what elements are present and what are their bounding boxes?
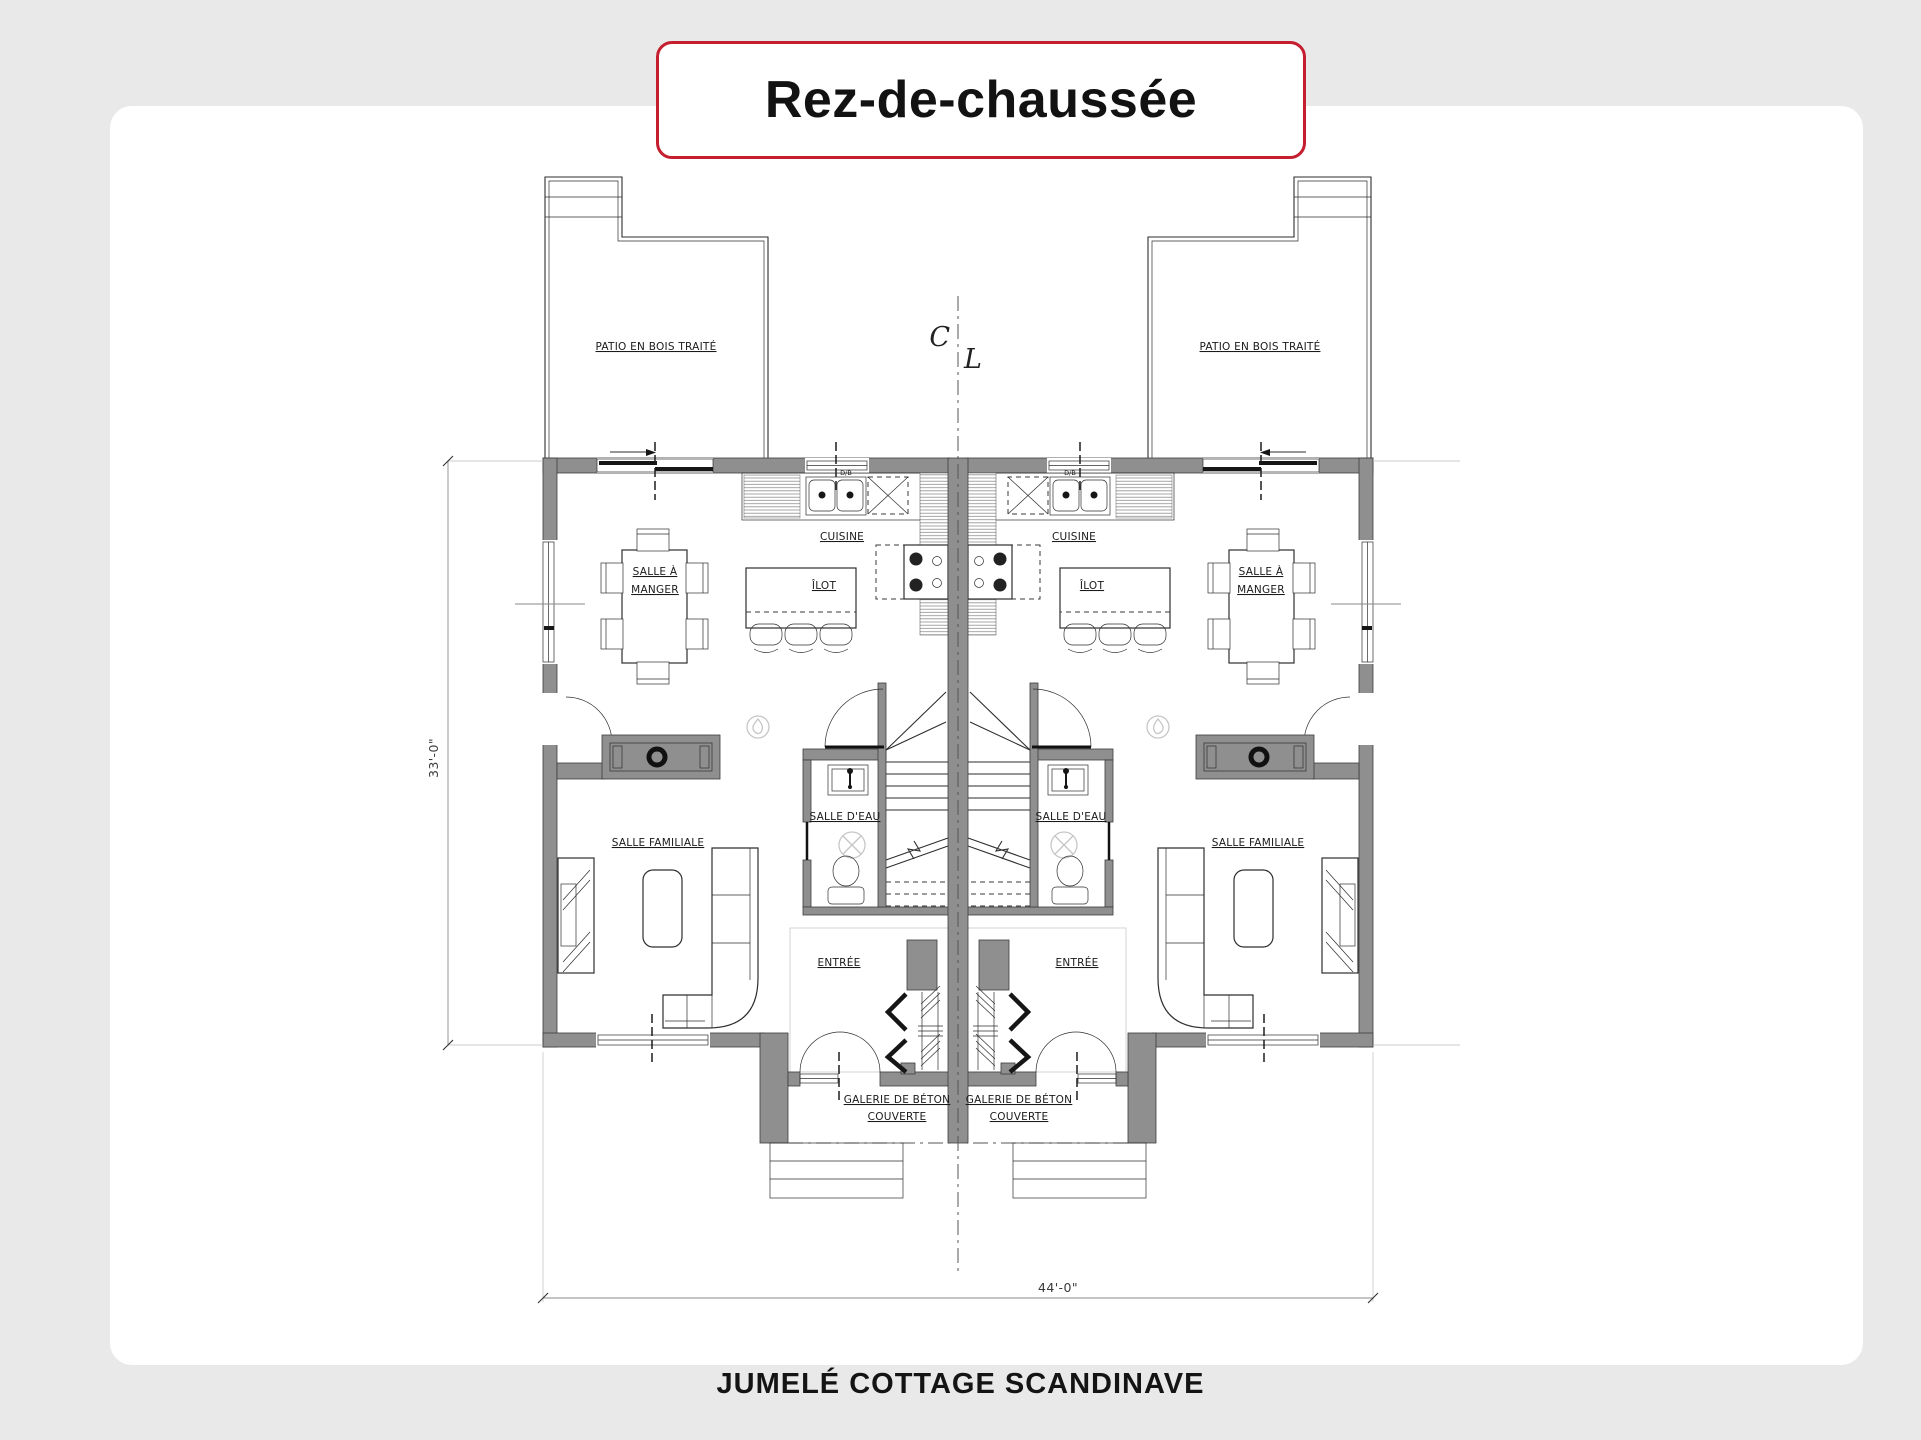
label-cuisine: CUISINE [820,531,864,543]
svg-text:33'-0": 33'-0" [426,738,441,778]
floor-plan-svg: C L 44'-0" 33'-0" PATIO EN BOIS TRAITÉ C… [400,160,1460,1330]
label-galerie: GALERIE DE BÉTON [966,1093,1073,1106]
centerline-c: C [929,322,950,353]
label-galerie: GALERIE DE BÉTON [844,1093,951,1106]
floor-plan: C L 44'-0" 33'-0" PATIO EN BOIS TRAITÉ C… [400,160,1460,1330]
label-salle-a-manger: SALLE À [1239,565,1284,578]
label-entree: ENTRÉE [1056,956,1099,969]
label-salle-a-manger: MANGER [1237,584,1285,596]
label-salle-familiale: SALLE FAMILIALE [1212,837,1305,849]
centerline-l: L [963,344,982,375]
title-box: Rez-de-chaussée [656,41,1306,159]
label-salle-deau: SALLE D'EAU [810,811,881,823]
label-ilot: ÎLOT [1079,579,1105,592]
svg-text:44'-0": 44'-0" [1038,1280,1078,1295]
label-cuisine: CUISINE [1052,531,1096,543]
label-entree: ENTRÉE [818,956,861,969]
label-salle-familiale: SALLE FAMILIALE [612,837,705,849]
label-sink-tag: D/B [1064,469,1076,477]
label-salle-a-manger: MANGER [631,584,679,596]
page-title: Rez-de-chaussée [765,70,1197,130]
plan-caption: JUMELÉ COTTAGE SCANDINAVE [0,1368,1921,1401]
label-patio: PATIO EN BOIS TRAITÉ [1200,340,1321,353]
label-salle-deau: SALLE D'EAU [1036,811,1107,823]
label-galerie: COUVERTE [990,1111,1049,1123]
label-salle-a-manger: SALLE À [633,565,678,578]
label-ilot: ÎLOT [811,579,837,592]
dimension-depth: 33'-0" [426,456,453,1050]
label-sink-tag: D/B [840,469,852,477]
dimension-width: 44'-0" [538,1280,1378,1303]
label-patio: PATIO EN BOIS TRAITÉ [596,340,717,353]
label-galerie: COUVERTE [868,1111,927,1123]
